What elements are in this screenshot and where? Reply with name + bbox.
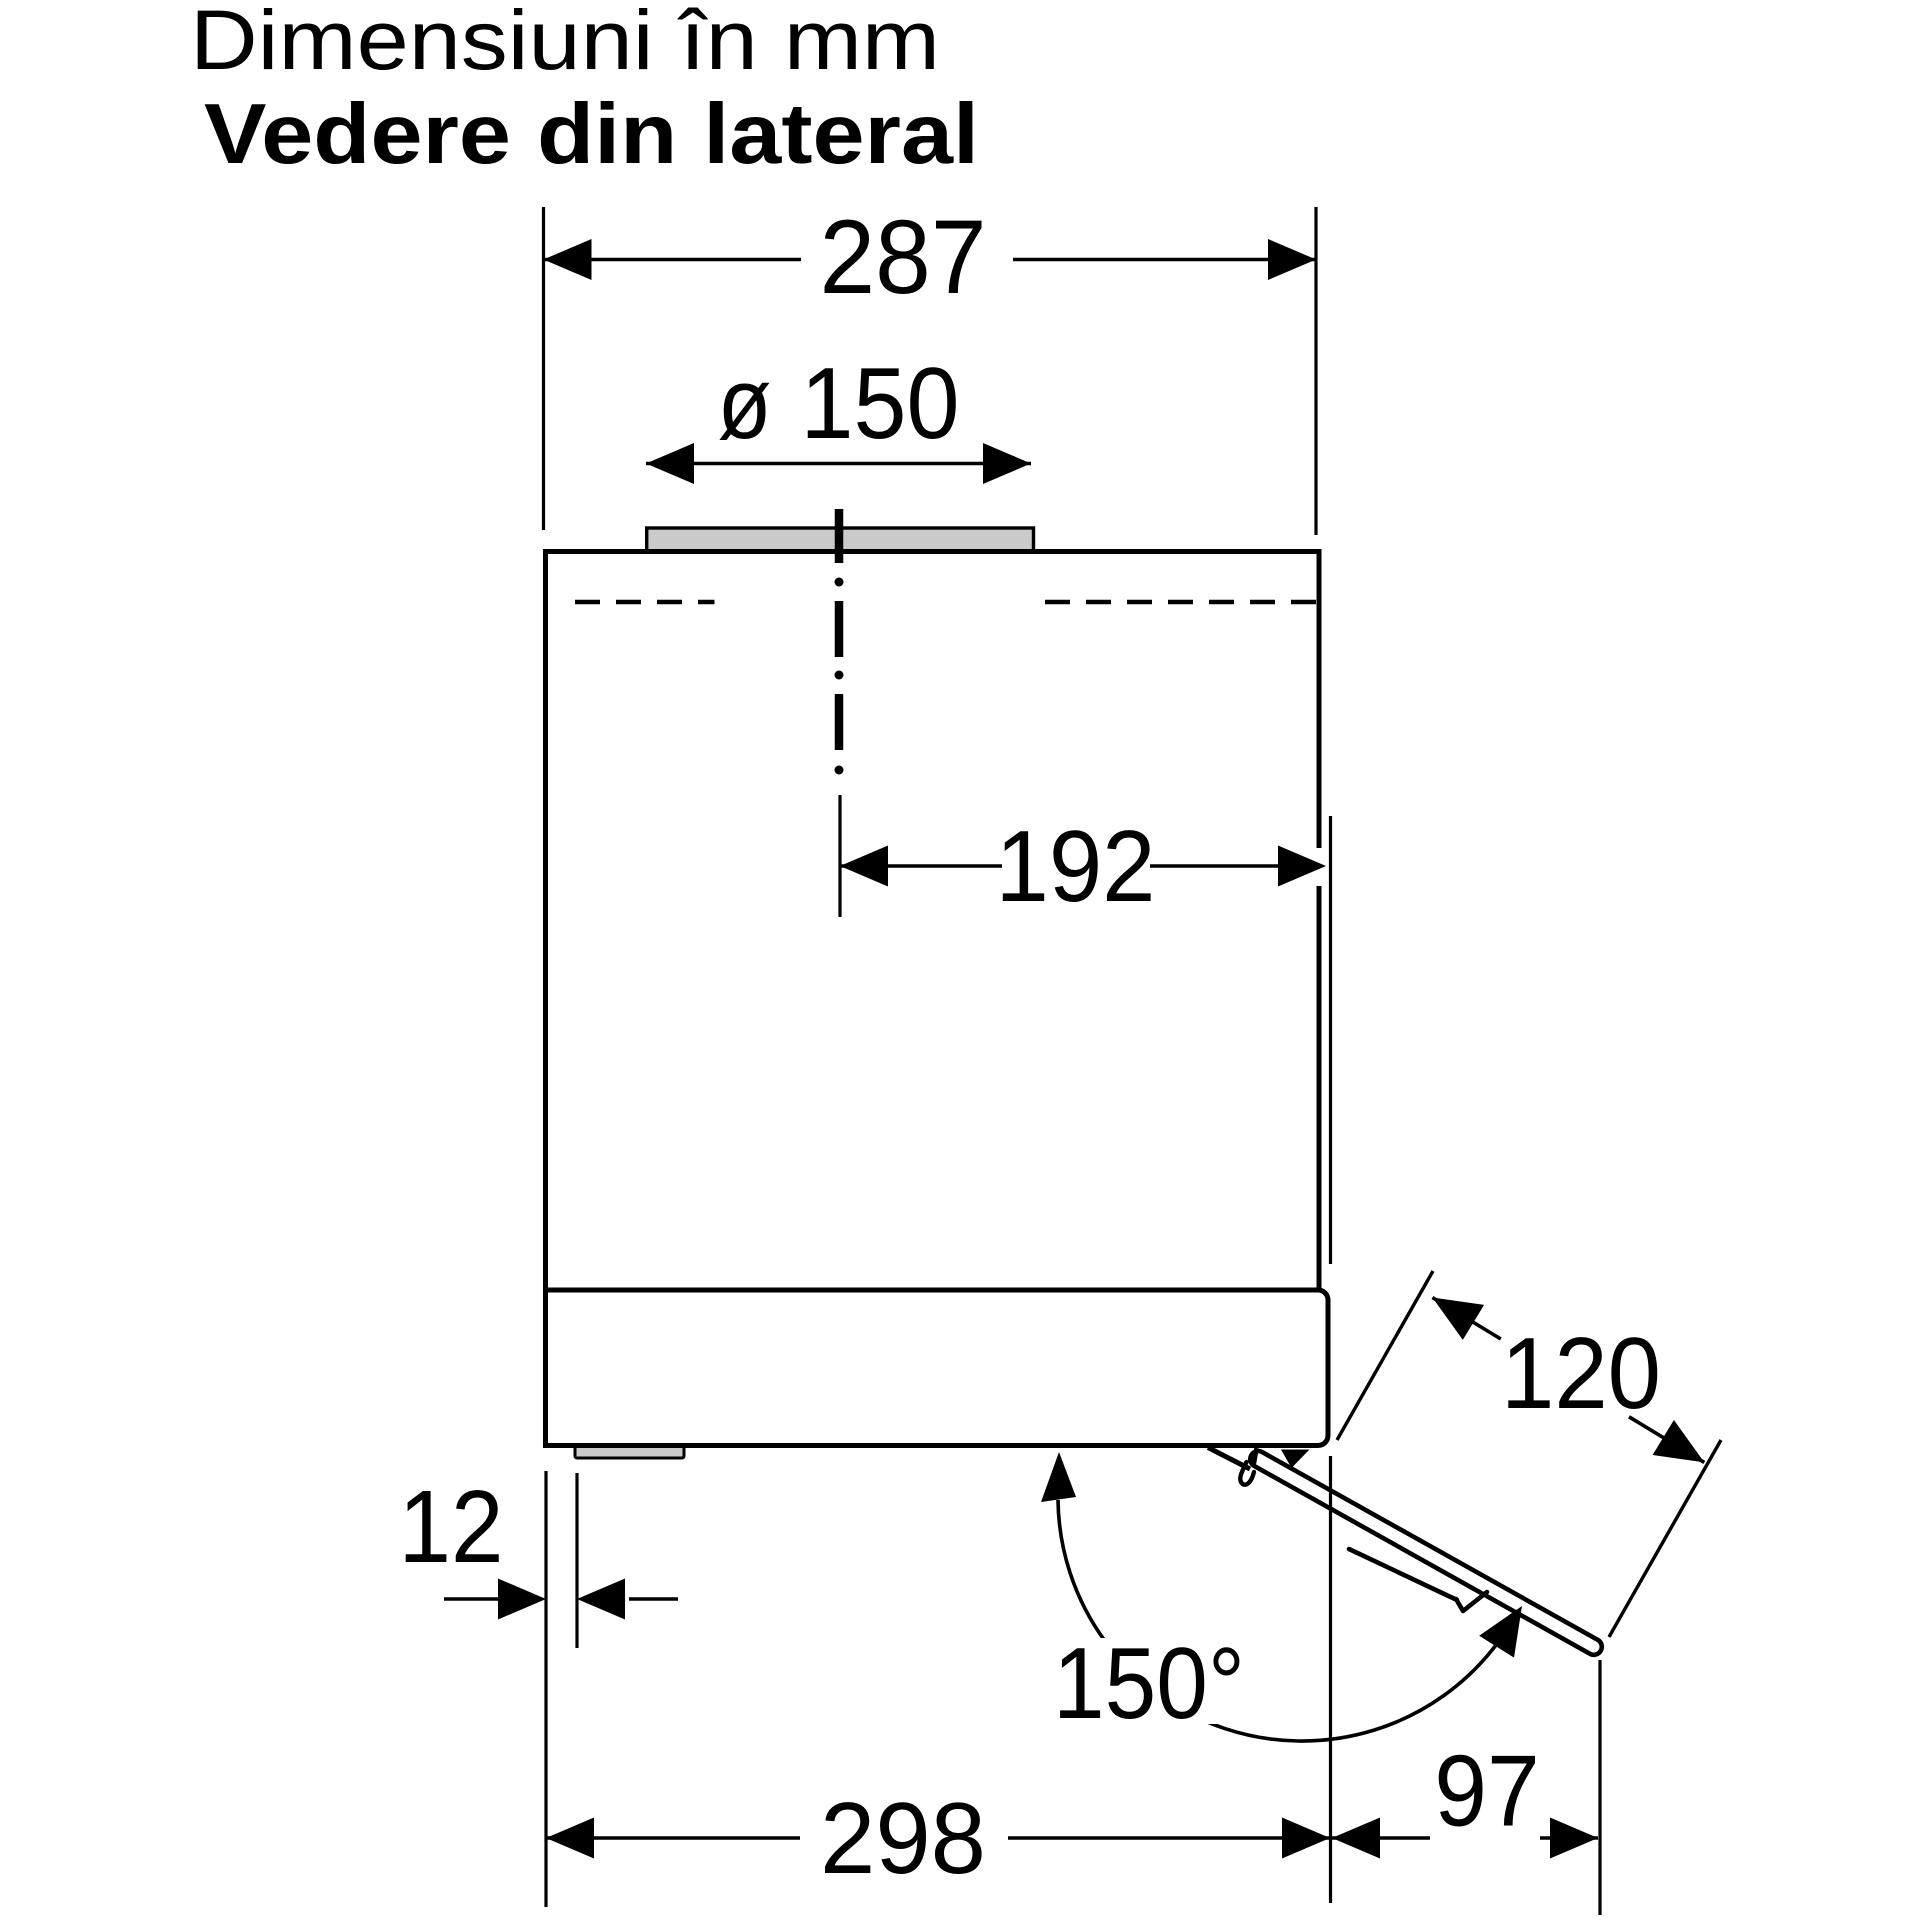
svg-text:120: 120 [1501, 1318, 1661, 1430]
svg-text:Vedere din lateral: Vedere din lateral [204, 87, 979, 182]
svg-text:ø: ø [718, 348, 772, 460]
svg-text:298: 298 [820, 1783, 986, 1895]
svg-text:150°: 150° [1053, 1628, 1245, 1740]
svg-text:97: 97 [1434, 1736, 1540, 1848]
svg-text:12: 12 [399, 1469, 504, 1584]
svg-text:Dimensiuni în mm: Dimensiuni în mm [190, 0, 940, 87]
svg-text:150: 150 [801, 348, 960, 460]
svg-text:287: 287 [820, 199, 987, 316]
svg-text:192: 192 [996, 811, 1156, 923]
